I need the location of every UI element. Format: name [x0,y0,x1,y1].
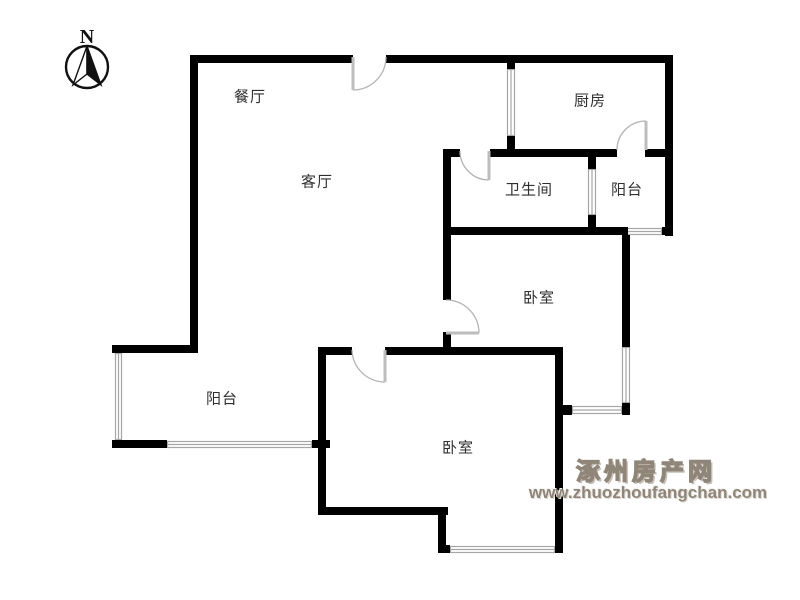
wall [490,149,617,157]
compass: N [58,18,116,94]
balcony-east-south-window [628,229,662,235]
walls-layer [112,55,673,553]
wall [438,545,450,553]
wall [645,149,673,157]
compass-needle-west [73,46,87,85]
wall [443,227,628,235]
wall [507,55,515,69]
compass-needle-east [87,46,101,85]
bedroom-south-south-window [451,547,555,553]
wall [563,405,572,415]
room-label-balcony-east: 阳台 [611,179,643,200]
wall [622,403,630,415]
room-label-living-room: 客厅 [301,171,333,192]
wall [662,227,673,235]
bathroom-door-arc [460,151,489,180]
bedroom-south-door-arc [352,350,385,382]
wall [443,149,451,300]
entrance-door-arc [353,57,386,90]
wall [386,55,673,63]
bathroom-door [460,151,489,180]
wall [665,55,673,236]
room-label-balcony-west: 阳台 [206,388,238,409]
kitchen-door [617,121,646,150]
bedroom-north-door [446,300,479,333]
wall [190,55,198,353]
floorplan-drawing [0,0,800,600]
entrance-door [353,57,386,90]
balcony-west-west-window [116,354,122,440]
compass-north-label: N [80,26,95,48]
wall [622,235,630,347]
wall [588,149,596,169]
kitchen-west-window [508,70,515,136]
floorplan-page: N 餐厅客厅厨房卫生间阳台卧室阳台卧室 涿州房产网 www.zhuozhoufa… [0,0,800,600]
room-label-bathroom: 卫生间 [505,179,553,200]
bedroom-north-east-window [623,348,630,403]
wall [385,347,563,355]
bathroom-balcony-divider-window [589,170,596,215]
bedroom-south-door [352,350,385,382]
room-label-dining-room: 餐厅 [234,86,266,107]
bedroom-north-door-arc [446,300,479,333]
balcony-west-south-window [168,442,312,448]
room-label-kitchen: 厨房 [574,90,606,111]
wall [555,347,563,553]
wall [318,507,448,515]
wall [507,136,515,150]
room-label-bedroom-south: 卧室 [442,437,474,458]
wall [318,347,326,515]
wall [190,55,353,63]
bay-south-window [573,407,622,414]
wall [112,440,167,448]
kitchen-door-arc [617,121,646,150]
room-label-bedroom-north: 卧室 [523,287,555,308]
wall [112,345,198,353]
